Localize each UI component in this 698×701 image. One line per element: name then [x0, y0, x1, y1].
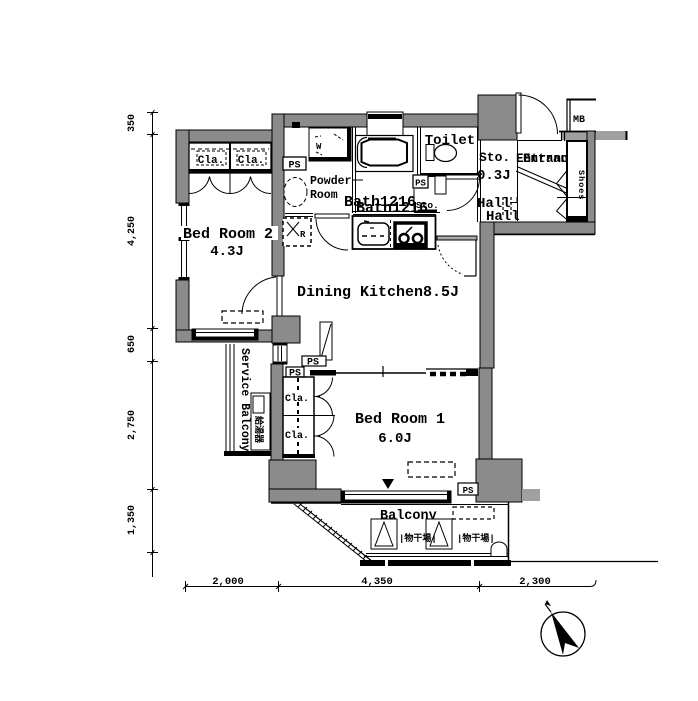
svg-text:2,750: 2,750 [127, 410, 138, 440]
svg-text:|物干場|: |物干場| [457, 532, 495, 544]
svg-text:Cla.: Cla. [285, 430, 309, 442]
svg-text:350: 350 [127, 114, 138, 132]
svg-text:1,350: 1,350 [127, 505, 138, 535]
svg-text:6.0J: 6.0J [378, 431, 412, 447]
svg-text:Room: Room [310, 189, 338, 202]
svg-text:給湯器: 給湯器 [253, 416, 265, 444]
svg-text:4,250: 4,250 [127, 216, 138, 246]
svg-text:4,350: 4,350 [361, 576, 393, 588]
svg-text:650: 650 [127, 335, 138, 353]
svg-text:Service Balcony: Service Balcony [238, 348, 251, 452]
svg-text:PS: PS [288, 161, 300, 172]
svg-text:|物干場|: |物干場| [399, 532, 437, 544]
svg-text:Powder: Powder [310, 175, 352, 188]
svg-text:PS: PS [463, 486, 474, 496]
svg-text:Dining Kitchen8.5J: Dining Kitchen8.5J [297, 284, 459, 301]
svg-text:2,000: 2,000 [212, 576, 244, 588]
svg-text:PS: PS [307, 358, 319, 369]
svg-text:Bed Room 1: Bed Room 1 [355, 411, 445, 428]
svg-text:MB: MB [573, 115, 585, 126]
svg-text:Sto.: Sto. [416, 200, 439, 211]
svg-text:Sto.: Sto. [479, 150, 510, 165]
svg-text:PS: PS [415, 179, 426, 189]
svg-text:R: R [300, 230, 306, 240]
svg-text:Cla.: Cla. [285, 393, 309, 405]
svg-text:2,300: 2,300 [519, 576, 551, 588]
svg-text:Bed Room 2: Bed Room 2 [183, 226, 273, 243]
svg-text:Cla.: Cla. [198, 155, 224, 167]
svg-text:Cla.: Cla. [238, 155, 264, 167]
svg-text:0.3J: 0.3J [477, 168, 511, 184]
svg-text:4.3J: 4.3J [210, 244, 244, 260]
svg-text:Shoes: Shoes [576, 170, 586, 201]
svg-text:W: W [316, 142, 322, 152]
svg-text:Hall: Hall [486, 209, 520, 225]
